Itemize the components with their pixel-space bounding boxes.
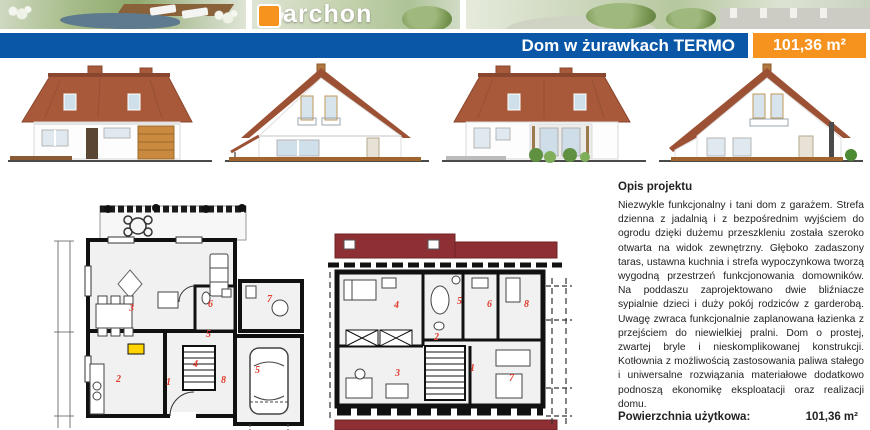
fence-post — [790, 8, 797, 18]
project-title: Dom w żurawkach TERMO — [522, 36, 735, 56]
roof-band-top — [455, 242, 557, 258]
bed — [496, 350, 530, 366]
toilet — [434, 322, 444, 330]
pool-photo-fragment — [60, 13, 180, 29]
car — [250, 348, 288, 414]
room-number: 6 — [487, 299, 492, 310]
project-title-bar: Dom w żurawkach TERMO — [0, 33, 748, 58]
stove — [128, 344, 144, 354]
kitchen-counter — [90, 364, 104, 414]
photo-garden-wall — [466, 0, 870, 29]
usable-area-value: 101,36 m² — [806, 411, 858, 423]
bush-photo-fragment — [402, 6, 452, 29]
bush-photo-fragment — [666, 8, 716, 29]
roof-vent — [428, 240, 439, 249]
room-number: 2 — [433, 332, 439, 343]
sink — [222, 289, 231, 297]
description-body: Niezwykle funkcjonalny i tani dom z gara… — [618, 199, 864, 412]
side-elevation-right-drawing — [651, 62, 868, 174]
room-number: 4 — [192, 359, 198, 370]
roof-band-bottom — [335, 420, 557, 430]
room-number: 1 — [166, 377, 171, 388]
washbasin — [452, 276, 460, 284]
archon-logo-square-icon — [257, 4, 281, 28]
rear-elevation-drawing — [434, 62, 651, 174]
room-number: 1 — [470, 363, 475, 374]
description-heading: Opis projektu — [618, 181, 864, 193]
fence-post — [730, 8, 737, 18]
room-number: 3 — [394, 368, 400, 379]
usable-area-label: Powierzchnia użytkowa: — [618, 411, 750, 423]
roof-vent — [344, 240, 355, 249]
desk — [346, 378, 372, 398]
stone-wall-photo-fragment — [720, 8, 870, 29]
flowers-photo-fragment — [210, 8, 240, 26]
elevations-row — [0, 62, 870, 174]
fence-post — [760, 8, 767, 18]
ground-floor-plan: 3 2 1 4 8 6 5 7 5 — [38, 196, 316, 430]
archon-logo-text: archon — [283, 1, 372, 27]
photo-strip: archon — [0, 0, 870, 29]
room-number: 3 — [128, 303, 134, 314]
room-number: 8 — [221, 375, 226, 386]
room-number: 2 — [115, 374, 121, 385]
room-number: 8 — [524, 299, 529, 310]
area-badge: 101,36 m² — [753, 33, 866, 58]
room-number: 6 — [208, 299, 213, 310]
bathtub — [431, 286, 449, 314]
washer — [472, 278, 488, 288]
area-value: 101,36 m² — [773, 37, 846, 55]
fence-post — [820, 8, 827, 18]
project-description: Opis projektu Niezwykle funkcjonalny i t… — [618, 181, 864, 412]
coffee-table — [158, 292, 178, 308]
room-number: 5 — [255, 365, 260, 376]
room-number: 5 — [457, 296, 462, 307]
wardrobe — [506, 278, 520, 302]
bush-photo-fragment — [586, 3, 656, 29]
usable-area-summary: Powierzchnia użytkowa: 101,36 m² — [618, 411, 858, 423]
side-elevation-left-drawing — [217, 62, 434, 174]
flowers-photo-fragment — [4, 4, 34, 22]
stairs — [183, 346, 215, 390]
stairs — [425, 346, 465, 400]
photo-garden-pool — [0, 0, 246, 29]
archon-logo: archon — [257, 1, 372, 29]
boiler — [272, 300, 288, 316]
dining-table — [96, 296, 133, 336]
front-elevation-drawing — [0, 62, 217, 174]
room-number: 4 — [393, 300, 399, 311]
room-number: 5 — [206, 329, 211, 340]
attic-floor-plan: 4 5 6 8 2 3 1 7 — [320, 228, 578, 430]
